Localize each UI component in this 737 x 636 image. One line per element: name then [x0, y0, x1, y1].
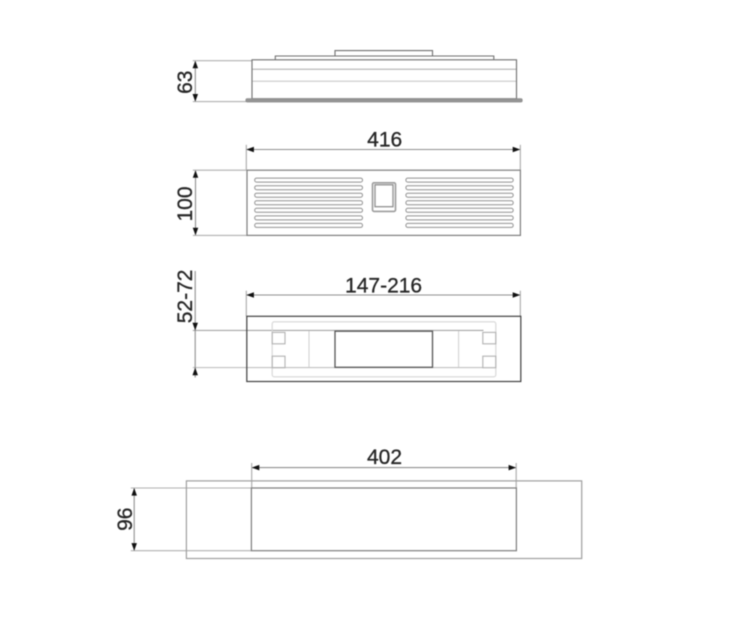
- svg-text:52-72: 52-72: [174, 270, 197, 324]
- svg-text:63: 63: [174, 71, 197, 94]
- svg-text:416: 416: [367, 129, 402, 152]
- svg-text:147-216: 147-216: [345, 275, 422, 298]
- svg-text:100: 100: [174, 186, 197, 221]
- svg-text:402: 402: [367, 446, 402, 469]
- svg-text:96: 96: [114, 508, 137, 531]
